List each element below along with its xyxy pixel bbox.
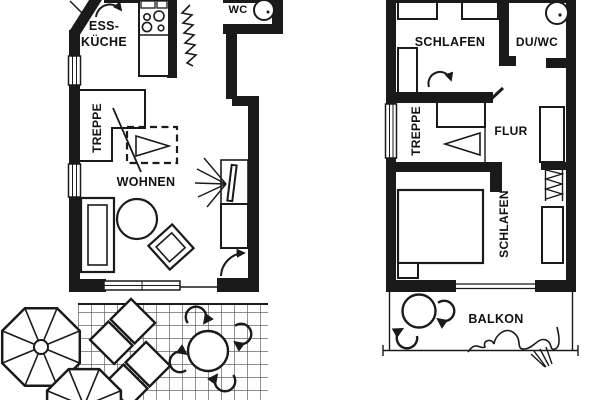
sink-basin xyxy=(141,1,155,8)
sofa-seat xyxy=(88,205,107,265)
kitchen-unit xyxy=(139,0,169,76)
cabinet xyxy=(221,204,248,248)
sink-basin xyxy=(157,1,167,8)
room-label-schlafen-top: SCHLAFEN xyxy=(415,35,485,49)
wall-left-lower xyxy=(386,158,396,280)
wall-stub-down xyxy=(490,162,502,192)
radiator xyxy=(546,167,563,201)
plant-sketch xyxy=(468,327,559,367)
room-label-esskueche-2: KÜCHE xyxy=(81,34,127,49)
door-swing-arc xyxy=(428,72,451,87)
bed xyxy=(398,2,437,19)
nightstand xyxy=(398,263,418,278)
window-left-upper xyxy=(69,56,81,85)
stove-burner xyxy=(154,11,164,21)
wc-basin xyxy=(254,0,274,20)
hedge-hatch xyxy=(182,5,196,66)
wall-bottom-left xyxy=(69,279,106,292)
left-floor-plan: ESS- KÜCHE WC TREPPE WOHNEN xyxy=(69,0,284,292)
balcony: BALKON xyxy=(383,292,578,367)
room-label-wc: WC xyxy=(229,4,248,16)
room-label-flur: FLUR xyxy=(494,124,527,138)
bedroom2-furniture xyxy=(398,190,483,278)
armchair xyxy=(148,224,193,269)
duwc-basin xyxy=(546,2,568,24)
wall-flur-bottom xyxy=(390,162,491,172)
room-label-wohnen: WOHNEN xyxy=(117,175,176,189)
wardrobe xyxy=(540,107,564,162)
room-label-treppe: TREPPE xyxy=(90,103,104,153)
stair-outline xyxy=(79,90,145,161)
stove-burner xyxy=(142,22,151,31)
window-left-lower xyxy=(69,164,81,197)
staircase-upper xyxy=(437,102,485,162)
wall-right xyxy=(248,102,259,282)
wall-top-wc xyxy=(223,0,283,3)
room-label-schlafen-bottom: SCHLAFEN xyxy=(497,190,511,258)
right-floor-plan: SCHLAFEN DU/WC TREPPE FLUR SCHLAFEN xyxy=(386,0,577,292)
bedroom1-furniture xyxy=(398,2,503,101)
wall-left-upper xyxy=(386,0,396,104)
balcony-chair xyxy=(393,328,418,351)
coffee-table xyxy=(117,199,157,239)
room-label-duwc: DU/WC xyxy=(516,35,558,49)
stove-burner xyxy=(158,25,164,31)
wardrobe xyxy=(542,207,563,263)
wall-right xyxy=(566,0,576,292)
balcony-chair xyxy=(438,301,454,321)
wall-bottom-left xyxy=(386,280,456,292)
room-label-balkon: BALKON xyxy=(468,312,523,326)
kitchen-counter xyxy=(139,0,169,76)
balcony-door xyxy=(456,284,535,289)
flur-furniture xyxy=(540,107,564,263)
wall-duwc-left xyxy=(499,0,509,58)
garden-table xyxy=(188,331,228,371)
door-leaf xyxy=(70,1,84,15)
window-bottom-band xyxy=(104,281,217,290)
wall-duwc-stub-left xyxy=(499,56,516,66)
wall-left-mid xyxy=(69,85,80,165)
window-stair-left xyxy=(386,104,397,158)
terrace-door-swing-arc xyxy=(221,253,244,276)
stair-landing xyxy=(437,102,485,127)
room-label-esskueche-1: ESS- xyxy=(89,19,119,33)
stove-burner xyxy=(144,14,150,20)
terrace xyxy=(2,299,268,400)
bed xyxy=(462,2,498,19)
direction-triangle xyxy=(136,136,169,156)
wall-hall-right xyxy=(226,33,237,99)
door-swing-arc xyxy=(96,5,121,17)
wall-left-upper xyxy=(69,30,80,57)
wall-duwc-stub-right xyxy=(546,58,566,68)
wall-left-lower xyxy=(69,196,80,288)
room-label-treppe-upper: TREPPE xyxy=(409,106,423,156)
floor-plan-page: ESS- KÜCHE WC TREPPE WOHNEN xyxy=(0,0,600,400)
floor-plan-drawing: ESS- KÜCHE WC TREPPE WOHNEN xyxy=(0,0,600,400)
balcony-table xyxy=(403,295,436,328)
direction-triangle xyxy=(445,133,480,155)
closet xyxy=(398,48,417,93)
double-bed xyxy=(398,190,483,263)
